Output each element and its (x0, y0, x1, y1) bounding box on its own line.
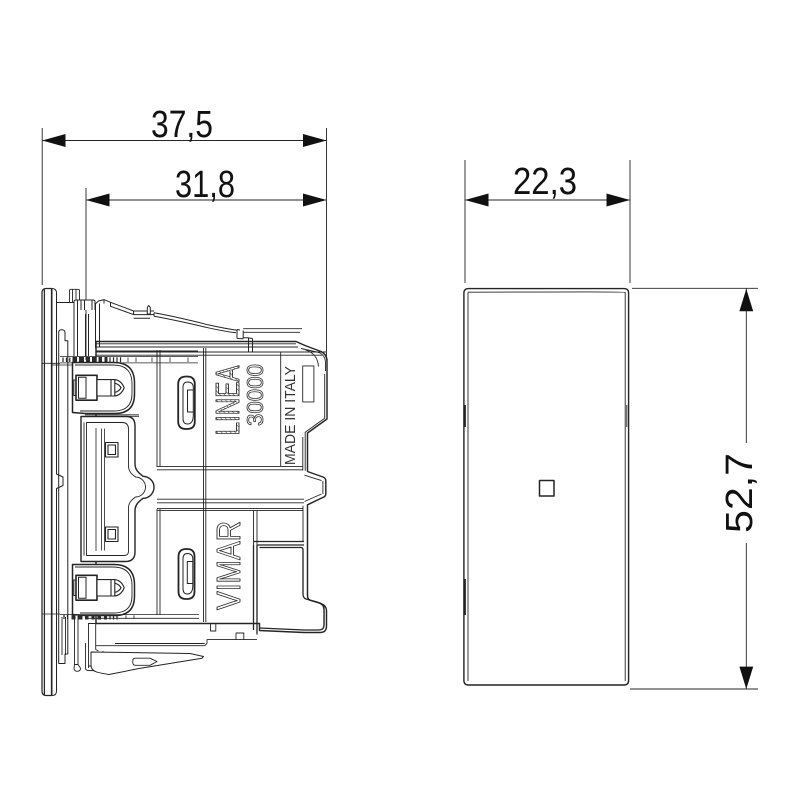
svg-text:31,8: 31,8 (175, 164, 235, 206)
svg-text:MADE IN ITALY: MADE IN ITALY (283, 366, 299, 465)
svg-text:37,5: 37,5 (151, 104, 213, 146)
svg-text:30000: 30000 (242, 364, 268, 426)
svg-text:22,3: 22,3 (513, 161, 577, 203)
svg-text:52,7: 52,7 (719, 453, 761, 533)
svg-text:LINEA: LINEA (209, 366, 246, 436)
svg-text:VIMAR: VIMAR (210, 521, 247, 610)
